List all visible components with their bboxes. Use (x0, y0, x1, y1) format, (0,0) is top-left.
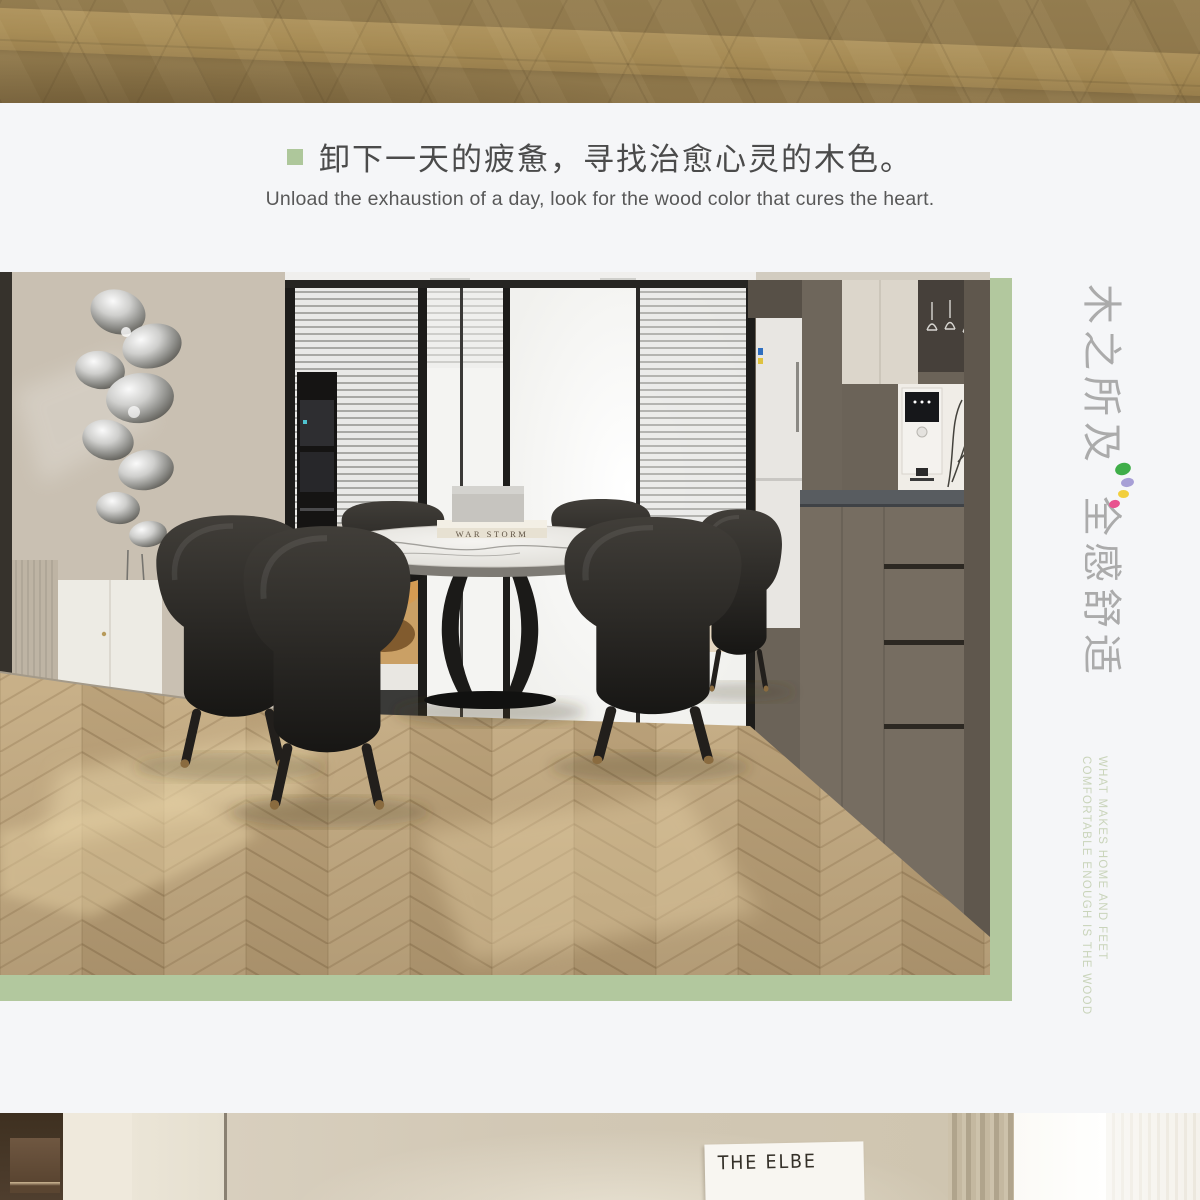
wall-poster: THE ELBE (704, 1141, 864, 1200)
brand-dot-yellow (1118, 490, 1129, 498)
brand-zh-line1: 木之所及 (1078, 284, 1124, 468)
cream-panel (132, 1113, 227, 1200)
wood-texture-banner (0, 0, 1200, 103)
venetian-blinds-right (640, 288, 746, 528)
hero-photo-scene: WAR STORM (0, 272, 990, 975)
walnut-cabinet (0, 1113, 63, 1200)
tagline-en-line1: WHAT MAKES HOME AND FEET (1094, 756, 1110, 1015)
white-credenza (58, 580, 162, 699)
bottom-photo: THE ELBE (0, 1113, 1200, 1200)
book-title: WAR STORM (456, 529, 529, 539)
cream-panel (63, 1113, 133, 1200)
hero-photo: WAR STORM (0, 272, 990, 975)
intro-section: 卸下一天的疲惫，寻找治愈心灵的木色。 Unload the exhaustion… (0, 134, 1200, 211)
wood-grain-overlay (0, 0, 1200, 103)
countertop (800, 490, 966, 504)
green-square-bullet (287, 149, 303, 165)
sheer-curtain (1106, 1113, 1200, 1200)
vertical-tagline-en: WHAT MAKES HOME AND FEET COMFORTABLE ENO… (1078, 756, 1110, 1015)
tagline-en-line2: COMFORTABLE ENOUGH IS THE WOOD (1078, 756, 1094, 1015)
poster-text: THE ELBE (718, 1150, 853, 1175)
curtain (948, 1113, 1014, 1200)
page: 卸下一天的疲惫，寻找治愈心灵的木色。 Unload the exhaustion… (0, 0, 1200, 1200)
water-dispenser (902, 388, 942, 481)
headline-zh: 卸下一天的疲惫，寻找治愈心灵的木色。 (319, 134, 913, 179)
subtitle-en: Unload the exhaustion of a day, look for… (0, 188, 1200, 211)
brand-zh-line2: 全感舒适 (1078, 496, 1124, 680)
bright-window (1014, 1113, 1106, 1200)
